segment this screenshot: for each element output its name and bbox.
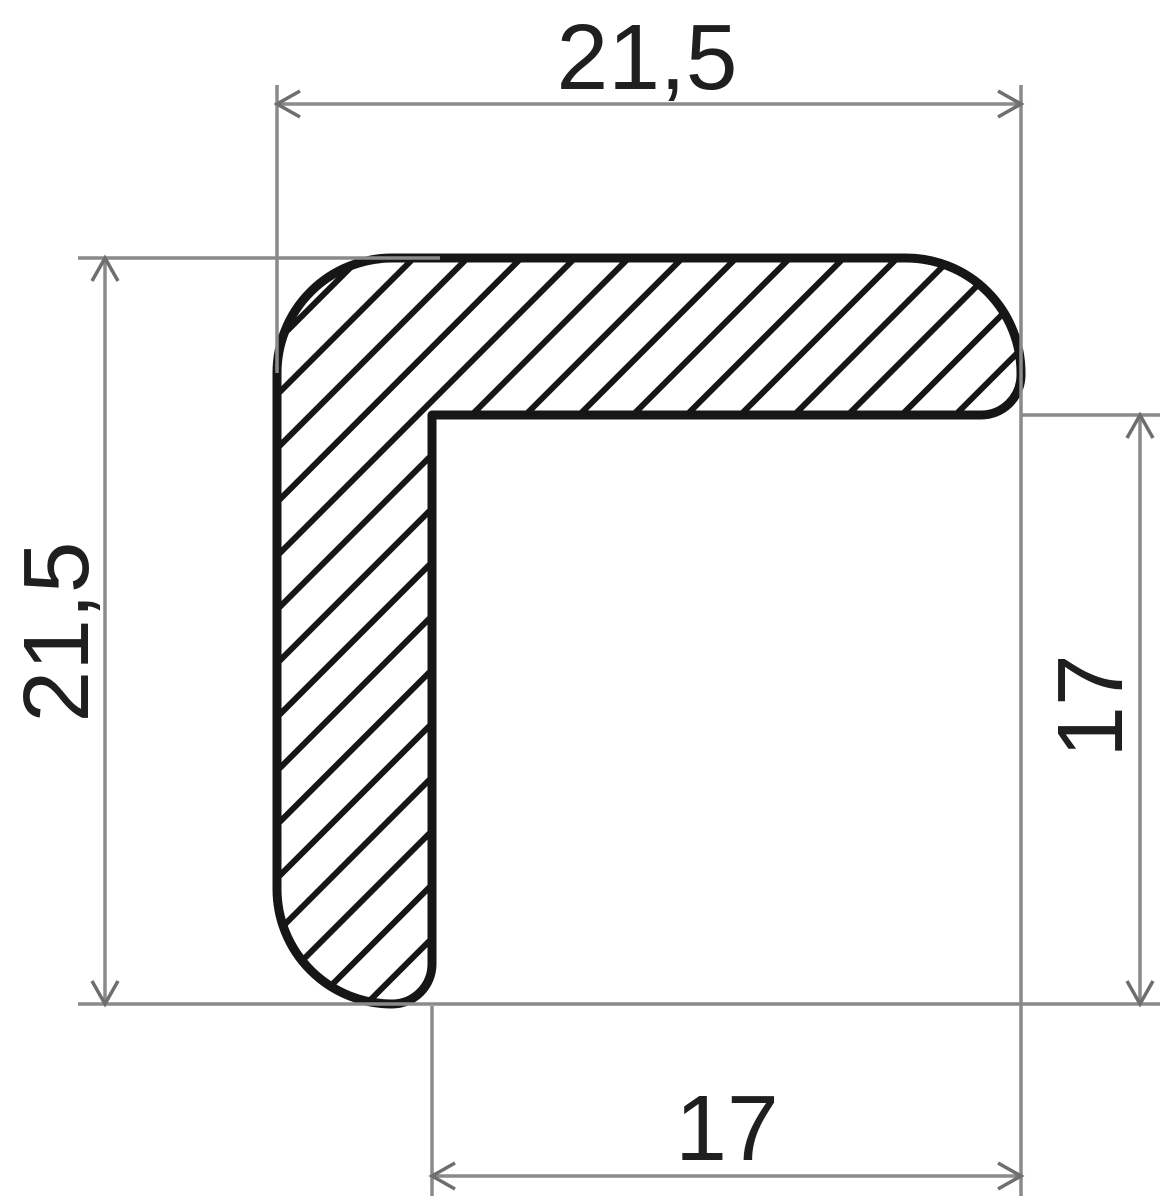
technical-drawing-page: 21,5 21,5 17 17: [0, 0, 1165, 1200]
dimension-label-right: 17: [1038, 654, 1142, 757]
dimension-label-top: 21,5: [556, 5, 737, 109]
profile-drawing-canvas: 21,5 21,5 17 17: [0, 0, 1165, 1200]
drawing-background: [0, 0, 1165, 1200]
dimension-label-bottom: 17: [675, 1076, 778, 1180]
dimension-label-left: 21,5: [4, 541, 108, 722]
